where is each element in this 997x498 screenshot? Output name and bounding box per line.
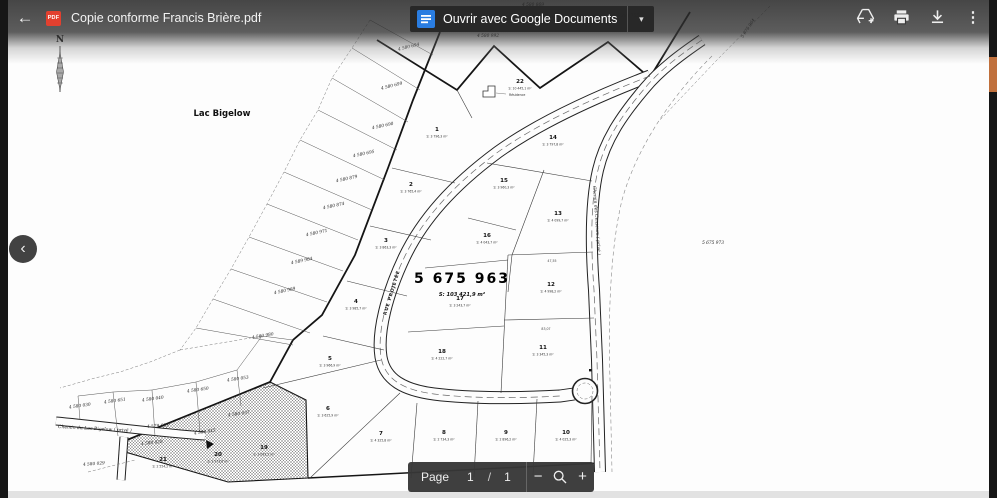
print-icon bbox=[892, 8, 911, 27]
main-lot-area: S: 103 421,9 m² bbox=[439, 292, 486, 298]
page-label: Page bbox=[421, 470, 449, 484]
chevron-left-icon: ‹ bbox=[20, 240, 25, 258]
download-button[interactable] bbox=[927, 7, 947, 27]
lot-area: S: 3 796,3 m² bbox=[426, 135, 448, 139]
lot-area: S: 3 966,9 m² bbox=[319, 364, 341, 368]
page-separator: / bbox=[488, 470, 491, 484]
lot-number: 5 bbox=[328, 356, 332, 362]
add-to-drive-button[interactable] bbox=[855, 7, 875, 27]
lot-number: 3 bbox=[384, 238, 388, 244]
lot-number: 7 bbox=[379, 431, 383, 437]
lot-number: 12 bbox=[547, 282, 555, 288]
parcel-id: 4 580 874 bbox=[322, 202, 346, 212]
lot-number: 18 bbox=[438, 349, 446, 355]
lot-number: 6 bbox=[326, 406, 330, 412]
parcel-id: 4 580 650 bbox=[186, 386, 210, 394]
lot-number: 4 bbox=[354, 299, 358, 305]
parcel-id: 4 580 053 bbox=[226, 375, 250, 383]
residence-label: Résidence bbox=[509, 93, 525, 97]
scrollbar-thumb[interactable] bbox=[989, 57, 997, 92]
lot-area: S: 10 445,1 m² bbox=[508, 87, 532, 91]
lot-area: S: 2 554,2 m² bbox=[152, 465, 174, 469]
page-controls: Page 1 / 1 − + bbox=[408, 462, 594, 492]
lot-area: S: 3 345,3 m² bbox=[532, 353, 554, 357]
lot-number: 9 bbox=[504, 430, 508, 436]
lot-number: 21 bbox=[159, 457, 167, 463]
dimension-label: 47,55 bbox=[547, 259, 556, 263]
lot-number: 19 bbox=[260, 445, 268, 451]
lot-area: S: 3 797,8 m² bbox=[542, 143, 564, 147]
lot-number: 11 bbox=[539, 345, 547, 351]
dimension-label: 83,07 bbox=[541, 327, 550, 331]
previous-page-button[interactable]: ‹ bbox=[9, 235, 37, 263]
lot-area: S: 2 734,3 m² bbox=[433, 438, 455, 442]
lot-number: 10 bbox=[562, 430, 570, 436]
top-toolbar: ← PDF Copie conforme Francis Brière.pdf … bbox=[0, 0, 997, 64]
lot-number: 1 bbox=[435, 127, 439, 133]
lot-area: S: 3 625,9 m² bbox=[317, 414, 339, 418]
pdf-file-icon: PDF bbox=[46, 11, 61, 26]
open-with-button[interactable]: Ouvrir avec Google Documents ▾ bbox=[410, 6, 654, 32]
page-bottom-edge bbox=[8, 491, 989, 498]
lot-area: S: 4 043,7 m² bbox=[476, 241, 498, 245]
lot-area: S: 4 025,3 m² bbox=[555, 438, 577, 442]
parcel-id: 4 580 030 bbox=[68, 402, 92, 410]
lot-area: S: 3 243,7 m² bbox=[449, 304, 471, 308]
back-button[interactable]: ← bbox=[14, 8, 36, 28]
current-page-input[interactable]: 1 bbox=[467, 470, 474, 484]
lot-area: S: 4 222,7 m² bbox=[431, 357, 453, 361]
lot-area: S: 3 093,2 m² bbox=[253, 453, 275, 457]
magnifier-icon bbox=[552, 469, 568, 485]
lot-number: 2 bbox=[409, 182, 413, 188]
open-with-label: Ouvrir avec Google Documents bbox=[443, 12, 627, 26]
document-title: Copie conforme Francis Brière.pdf bbox=[71, 11, 261, 25]
lot-number: 14 bbox=[549, 135, 557, 141]
lot-number: 15 bbox=[500, 178, 508, 184]
parcel-id: 4 580 029 bbox=[82, 461, 105, 468]
parcel-id: 4 580 695 bbox=[352, 150, 376, 160]
lot-area: S: 2 973,6 m² bbox=[207, 460, 229, 464]
total-pages: 1 bbox=[504, 470, 511, 484]
parcel-id: 4 580 879 bbox=[335, 175, 359, 185]
lot-number: 20 bbox=[214, 452, 222, 458]
residence-icon bbox=[483, 86, 506, 97]
zoom-button[interactable] bbox=[550, 469, 571, 485]
more-options-button[interactable]: ⋮ bbox=[963, 7, 983, 27]
print-button[interactable] bbox=[891, 7, 911, 27]
lot-number: 22 bbox=[516, 79, 524, 85]
add-to-drive-icon bbox=[856, 8, 875, 27]
lot-area: S: 4 099,7 m² bbox=[547, 219, 569, 223]
lot-area: S: 4 325,8 m² bbox=[370, 439, 392, 443]
download-icon bbox=[928, 8, 947, 27]
left-letterbox bbox=[0, 0, 8, 498]
lot-area: S: 2 896,2 m² bbox=[495, 438, 517, 442]
parcel-id: 4 580 699 bbox=[380, 81, 404, 91]
lot-number: 13 bbox=[554, 211, 562, 217]
lot-area: S: 4 998,2 m² bbox=[540, 290, 562, 294]
lot-number: 8 bbox=[442, 430, 446, 436]
parcel-id: 4 580 690 bbox=[371, 122, 395, 132]
google-docs-icon bbox=[417, 10, 435, 28]
lake-label: Lac Bigelow bbox=[194, 109, 251, 119]
main-lot-number: 5 675 963 bbox=[414, 271, 510, 287]
zoom-in-button[interactable]: + bbox=[571, 462, 594, 492]
parcel-id: 5 675 973 bbox=[702, 241, 724, 246]
zoom-out-button[interactable]: − bbox=[527, 462, 550, 492]
drive-pdf-preview: 4 580 8694 580 9925 380 7555 675 9645 67… bbox=[0, 0, 997, 498]
parcel-id: 4 589 984 bbox=[290, 257, 314, 267]
parcel-id: 4 580 989 bbox=[273, 287, 297, 297]
lot-area: S: 3 765,4 m² bbox=[400, 190, 422, 194]
lot-number: 16 bbox=[483, 233, 491, 239]
survey-map: 4 580 8694 580 9925 380 7555 675 9645 67… bbox=[0, 0, 997, 498]
right-letterbox bbox=[989, 0, 997, 498]
open-with-dropdown-caret[interactable]: ▾ bbox=[628, 14, 654, 25]
lot-area: S: 3 863,3 m² bbox=[375, 246, 397, 250]
lot-area: S: 3 960,3 m² bbox=[493, 186, 515, 190]
roads bbox=[56, 40, 712, 480]
parcel-id: 4 580 971 bbox=[305, 229, 328, 239]
lot-area: S: 3 985,7 m² bbox=[345, 307, 367, 311]
